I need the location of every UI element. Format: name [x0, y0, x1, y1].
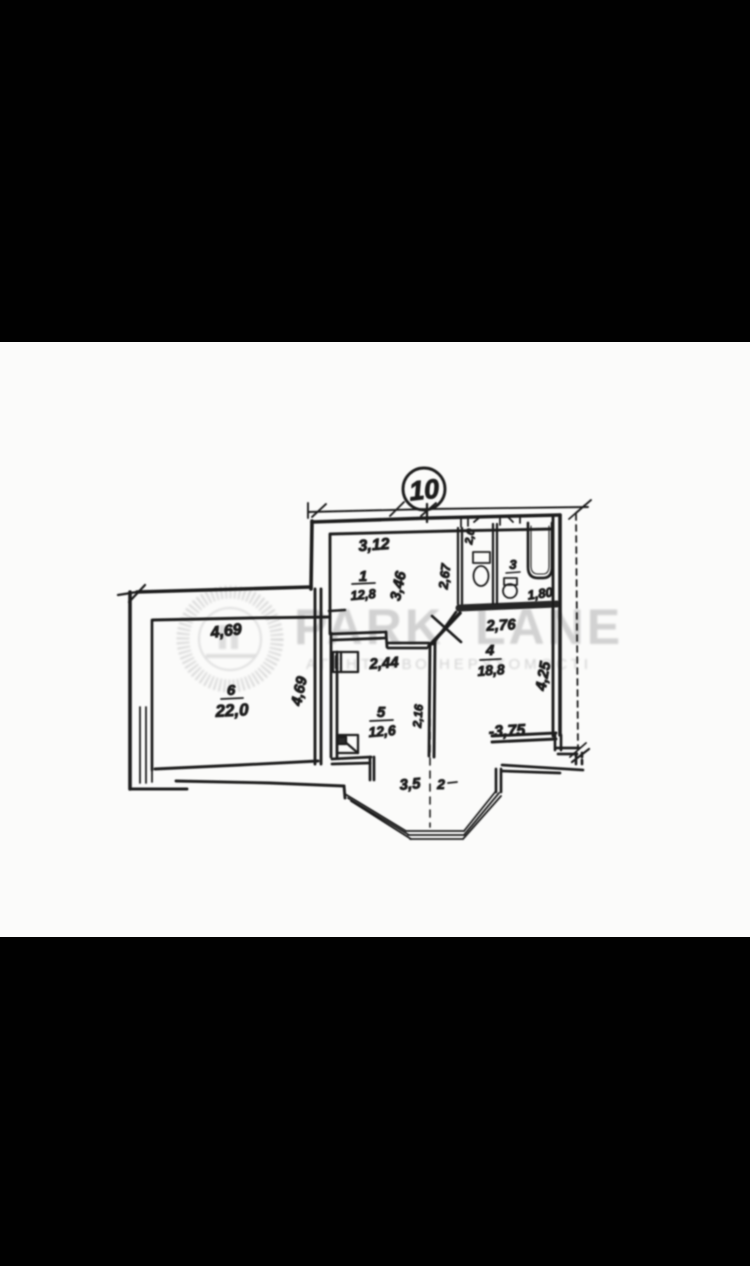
svg-text:3,12: 3,12	[358, 536, 390, 555]
svg-text:4: 4	[485, 642, 495, 659]
svg-text:18,8: 18,8	[477, 661, 506, 679]
svg-text:1: 1	[359, 568, 367, 585]
svg-text:5: 5	[377, 704, 386, 721]
svg-text:22,0: 22,0	[214, 700, 250, 721]
svg-text:-3,75: -3,75	[488, 722, 526, 741]
svg-text:12,8: 12,8	[350, 586, 377, 603]
svg-text:12,6: 12,6	[368, 722, 397, 740]
svg-text:6: 6	[227, 682, 236, 699]
svg-text:3,5: 3,5	[399, 775, 422, 794]
svg-text:10: 10	[408, 474, 441, 507]
svg-text:3: 3	[509, 557, 517, 572]
svg-text:2: 2	[436, 776, 445, 792]
svg-text:2,44: 2,44	[368, 654, 400, 673]
svg-text:2,76: 2,76	[485, 616, 517, 635]
svg-text:2,16: 2,16	[410, 703, 426, 729]
